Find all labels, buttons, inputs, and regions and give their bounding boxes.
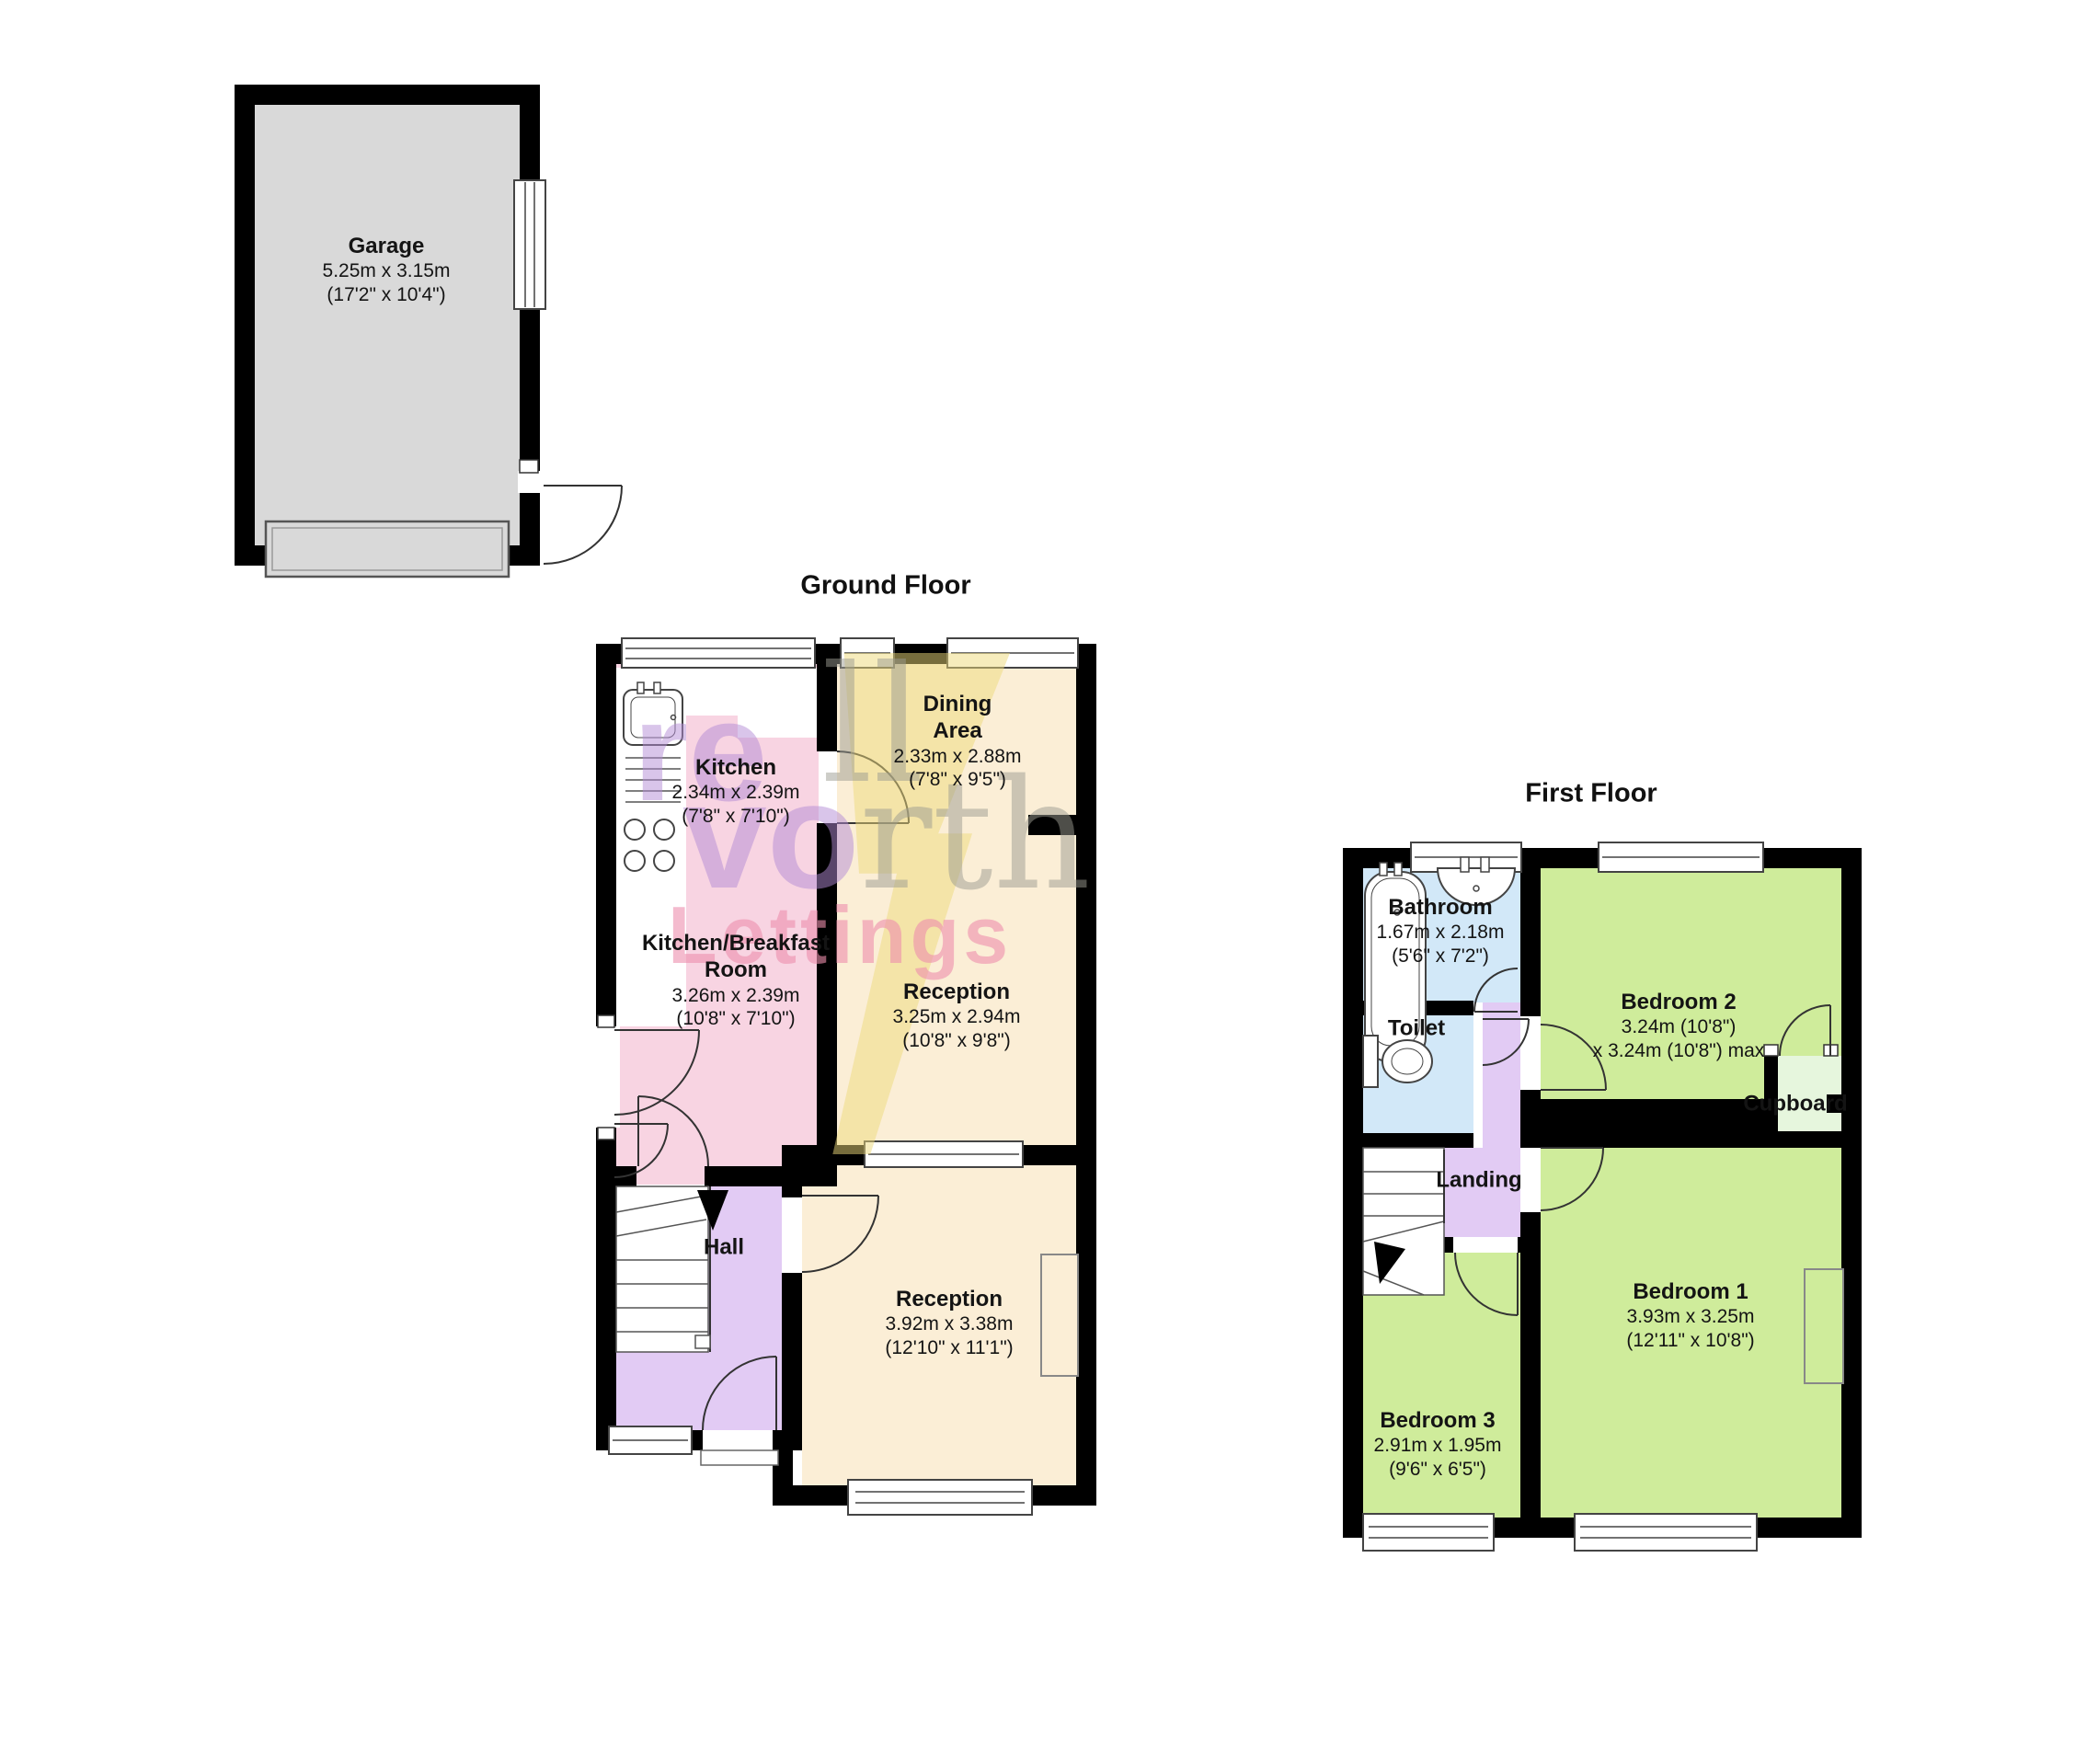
room-dim-metric: 3.92m x 3.38m — [885, 1312, 1013, 1336]
room-label-reception2: Reception 3.92m x 3.38m (12'10" x 11'1") — [885, 1286, 1013, 1359]
room-label-toilet: Toilet — [1388, 1014, 1445, 1041]
room-label-cupboard: Cupboard — [1743, 1090, 1847, 1117]
room-dim-metric: 2.33m x 2.88m — [894, 745, 1022, 769]
garage-floor — [255, 105, 520, 545]
room-dim-imperial: (10'8" x 7'10") — [642, 1007, 830, 1031]
room-name: Kitchen — [672, 754, 800, 781]
door-jamb — [598, 1128, 614, 1140]
room-dim-metric: 3.26m x 2.39m — [642, 984, 830, 1008]
room-name: Garage — [323, 233, 451, 259]
toilet-cistern — [1363, 1036, 1378, 1087]
chimney-breast — [1805, 1269, 1843, 1383]
room-dim-imperial: (12'11" x 10'8") — [1626, 1329, 1754, 1353]
wall-segment — [817, 664, 837, 751]
floorplan-page: re ll vorth Lettings Ground Floor First … — [0, 0, 2075, 1764]
bay-window — [848, 1480, 1032, 1515]
room-dim-metric: 3.24m (10'8") — [1593, 1015, 1765, 1039]
room-name: Bedroom 3 — [1374, 1407, 1502, 1434]
door-arc — [544, 486, 622, 564]
room-dim-imperial: (12'10" x 11'1") — [885, 1336, 1013, 1360]
room-label-reception1: Reception 3.25m x 2.94m (10'8" x 9'8") — [893, 979, 1021, 1052]
tap — [1380, 863, 1387, 876]
room-name: Cupboard — [1743, 1090, 1847, 1117]
newel-post — [695, 1335, 710, 1348]
toilet-bowl — [1382, 1040, 1432, 1082]
room-name: Room — [642, 956, 830, 983]
room-name: Bathroom — [1377, 894, 1505, 921]
room-name: Bedroom 2 — [1593, 989, 1765, 1015]
wall-segment — [1520, 868, 1541, 1016]
wall-segment — [1520, 1212, 1541, 1519]
room-name: Dining — [894, 691, 1022, 717]
wall-segment — [782, 1273, 802, 1450]
room-dim-metric: 5.25m x 3.15m — [323, 259, 451, 283]
room-label-kitchen: Kitchen 2.34m x 2.39m (7'8" x 7'10") — [672, 754, 800, 828]
room-label-dining-area: Dining Area 2.33m x 2.88m (7'8" x 9'5") — [894, 691, 1022, 792]
wall-segment — [1343, 848, 1363, 1538]
room-dim-imperial: (10'8" x 9'8") — [893, 1029, 1021, 1053]
room-dim-imperial: (7'8" x 7'10") — [672, 805, 800, 829]
ground-floor-title: Ground Floor — [800, 571, 970, 601]
floorplan-drawing — [0, 0, 2075, 1764]
tap — [654, 682, 660, 693]
door-jamb — [520, 460, 538, 473]
room-dim-metric: 1.67m x 2.18m — [1377, 921, 1505, 945]
room-dim-imperial: (17'2" x 10'4") — [323, 283, 451, 307]
wall-segment — [782, 1145, 817, 1186]
door-opening — [592, 1026, 620, 1128]
stairs-box — [1363, 1148, 1444, 1295]
wall-segment — [1518, 1237, 1530, 1253]
room-label-bedroom3: Bedroom 3 2.91m x 1.95m (9'6" x 6'5") — [1374, 1407, 1502, 1481]
window — [1575, 1514, 1757, 1551]
room-name: Kitchen/Breakfast — [642, 930, 830, 956]
room-name: Bedroom 1 — [1626, 1278, 1754, 1305]
room-label-landing: Landing — [1436, 1166, 1521, 1193]
stairs-box — [616, 1186, 708, 1352]
tap — [1481, 857, 1489, 872]
room-name: Reception — [885, 1286, 1013, 1312]
door-jamb — [598, 1015, 614, 1027]
wall-segment — [782, 1186, 802, 1197]
door-jamb — [1764, 1045, 1778, 1056]
room-dim-metric: 2.34m x 2.39m — [672, 781, 800, 805]
wall-segment — [705, 1166, 837, 1186]
porch-step — [701, 1450, 778, 1465]
room-dim-imperial: (5'6" x 7'2") — [1377, 945, 1505, 968]
window — [1363, 1514, 1494, 1551]
wall-segment — [1076, 644, 1096, 1506]
room-dim-imperial: (9'6" x 6'5") — [1374, 1458, 1502, 1482]
chimney-breast — [1041, 1254, 1078, 1376]
wall-segment — [1541, 1099, 1764, 1131]
room-label-bathroom: Bathroom 1.67m x 2.18m (5'6" x 7'2") — [1377, 894, 1505, 968]
kitchen-counter — [738, 668, 817, 738]
window — [622, 638, 815, 668]
wall-segment — [1541, 1131, 1843, 1148]
tap — [637, 682, 644, 693]
wall-segment — [1363, 1133, 1473, 1148]
tap — [1394, 863, 1402, 876]
wall-segment — [1520, 1090, 1541, 1148]
room-dim-imperial: (7'8" x 9'5") — [894, 768, 1022, 792]
first-floor-title: First Floor — [1525, 779, 1657, 809]
window — [514, 180, 545, 309]
room-name: Landing — [1436, 1166, 1521, 1193]
room-name: Reception — [893, 979, 1021, 1005]
garage-door — [266, 521, 509, 577]
room-label-hall: Hall — [704, 1233, 744, 1260]
room-name: Hall — [704, 1233, 744, 1260]
room-label-kitchen-breakfast: Kitchen/Breakfast Room 3.26m x 2.39m (10… — [642, 930, 830, 1031]
staircase — [1363, 1148, 1444, 1295]
room-name: Area — [894, 717, 1022, 744]
room-dim-metric: 2.91m x 1.95m — [1374, 1434, 1502, 1458]
wall-segment — [1841, 848, 1862, 1538]
sink — [624, 690, 682, 745]
wall-segment — [1028, 815, 1078, 835]
tap — [1461, 857, 1469, 872]
room-label-bedroom2: Bedroom 2 3.24m (10'8") x 3.24m (10'8") … — [1593, 989, 1765, 1062]
door-opening — [518, 471, 542, 493]
room-label-garage: Garage 5.25m x 3.15m (17'2" x 10'4") — [323, 233, 451, 306]
room-dim-imperial: x 3.24m (10'8") max — [1593, 1039, 1765, 1063]
room-label-bedroom1: Bedroom 1 3.93m x 3.25m (12'11" x 10'8") — [1626, 1278, 1754, 1352]
garage-plan — [235, 85, 622, 577]
room-dim-metric: 3.93m x 3.25m — [1626, 1305, 1754, 1329]
room-name: Toilet — [1388, 1014, 1445, 1041]
room-dim-metric: 3.25m x 2.94m — [893, 1005, 1021, 1029]
